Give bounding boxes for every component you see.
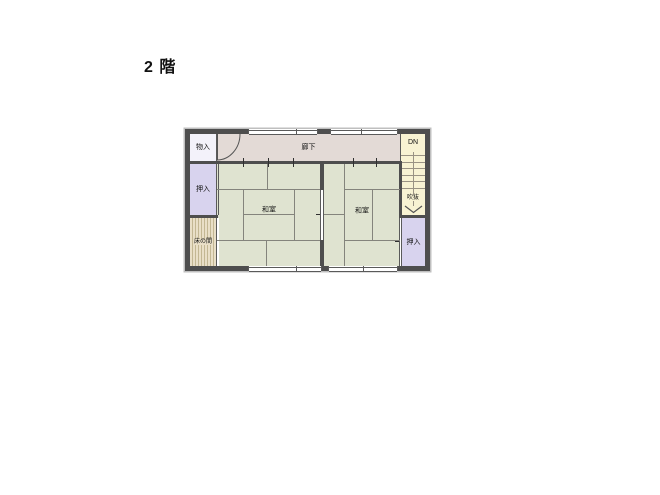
room-oshiire-left: 押入 bbox=[190, 164, 216, 215]
tatami-line bbox=[267, 164, 268, 189]
stairwell-area: DN 吹抜 bbox=[401, 134, 425, 215]
room-washitsu-right bbox=[324, 164, 400, 266]
window bbox=[248, 266, 322, 271]
wall-stairs-closet bbox=[399, 215, 425, 218]
corridor-stairs-divider bbox=[400, 134, 401, 161]
room-label: 押入 bbox=[196, 186, 210, 193]
fukinuke-label: 吹抜 bbox=[401, 195, 425, 201]
wall-between-rooms-bottom bbox=[320, 240, 324, 266]
floor-plan: 物入 押入 床の間 廊下 押入 DN 吹抜 bbox=[185, 129, 430, 271]
tatami-line bbox=[344, 240, 400, 241]
page: { "title": "2 階", "floor_plan": { "rooms… bbox=[0, 0, 660, 495]
oshiire-right-sliding-door bbox=[399, 218, 402, 266]
tatami-line bbox=[294, 189, 295, 240]
stair-down-arrow-icon bbox=[404, 205, 423, 214]
fusuma-tick bbox=[353, 158, 354, 167]
room-washitsu-left bbox=[217, 164, 320, 266]
tatami-line bbox=[266, 240, 267, 266]
wall-between-rooms-top bbox=[320, 164, 324, 190]
tatami-line bbox=[344, 164, 345, 266]
room-label: 床の間 bbox=[194, 239, 212, 245]
tatami-line bbox=[217, 189, 320, 190]
fusuma-tick bbox=[243, 158, 244, 167]
tatami-line bbox=[243, 214, 294, 215]
room-label-washitsu-right: 和室 bbox=[355, 208, 369, 215]
room-label: 廊下 bbox=[302, 144, 316, 151]
window bbox=[330, 129, 398, 134]
tokonoma-edge-gap bbox=[217, 218, 219, 266]
window-tick bbox=[296, 266, 297, 271]
stairs-dn-label: DN bbox=[401, 139, 425, 146]
floor-title: 2 階 bbox=[144, 53, 176, 77]
fusuma-between-rooms bbox=[320, 190, 324, 240]
door-swing-arc bbox=[217, 134, 243, 162]
window bbox=[248, 129, 318, 134]
wall-closet-tokonoma bbox=[190, 215, 218, 218]
tatami-line bbox=[372, 189, 373, 240]
window-tick bbox=[361, 129, 362, 134]
room-label: 押入 bbox=[407, 239, 421, 246]
fusuma-tick bbox=[376, 158, 377, 167]
door-tick bbox=[395, 241, 399, 242]
room-rouka-corridor: 廊下 bbox=[217, 134, 400, 161]
window-tick bbox=[363, 266, 364, 271]
fusuma-tick bbox=[316, 214, 320, 215]
window bbox=[328, 266, 398, 271]
fusuma-tick bbox=[268, 158, 269, 167]
tatami-line bbox=[324, 214, 344, 215]
room-label-washitsu-left: 和室 bbox=[262, 207, 276, 214]
room-label: 物入 bbox=[196, 144, 210, 151]
tatami-line bbox=[217, 240, 320, 241]
room-tokonoma: 床の間 bbox=[190, 218, 216, 266]
room-oshiire-right: 押入 bbox=[402, 218, 425, 266]
outer-wall-right bbox=[425, 129, 430, 271]
window-tick bbox=[296, 129, 297, 134]
fusuma-tick bbox=[293, 158, 294, 167]
room-monoire: 物入 bbox=[190, 134, 216, 161]
